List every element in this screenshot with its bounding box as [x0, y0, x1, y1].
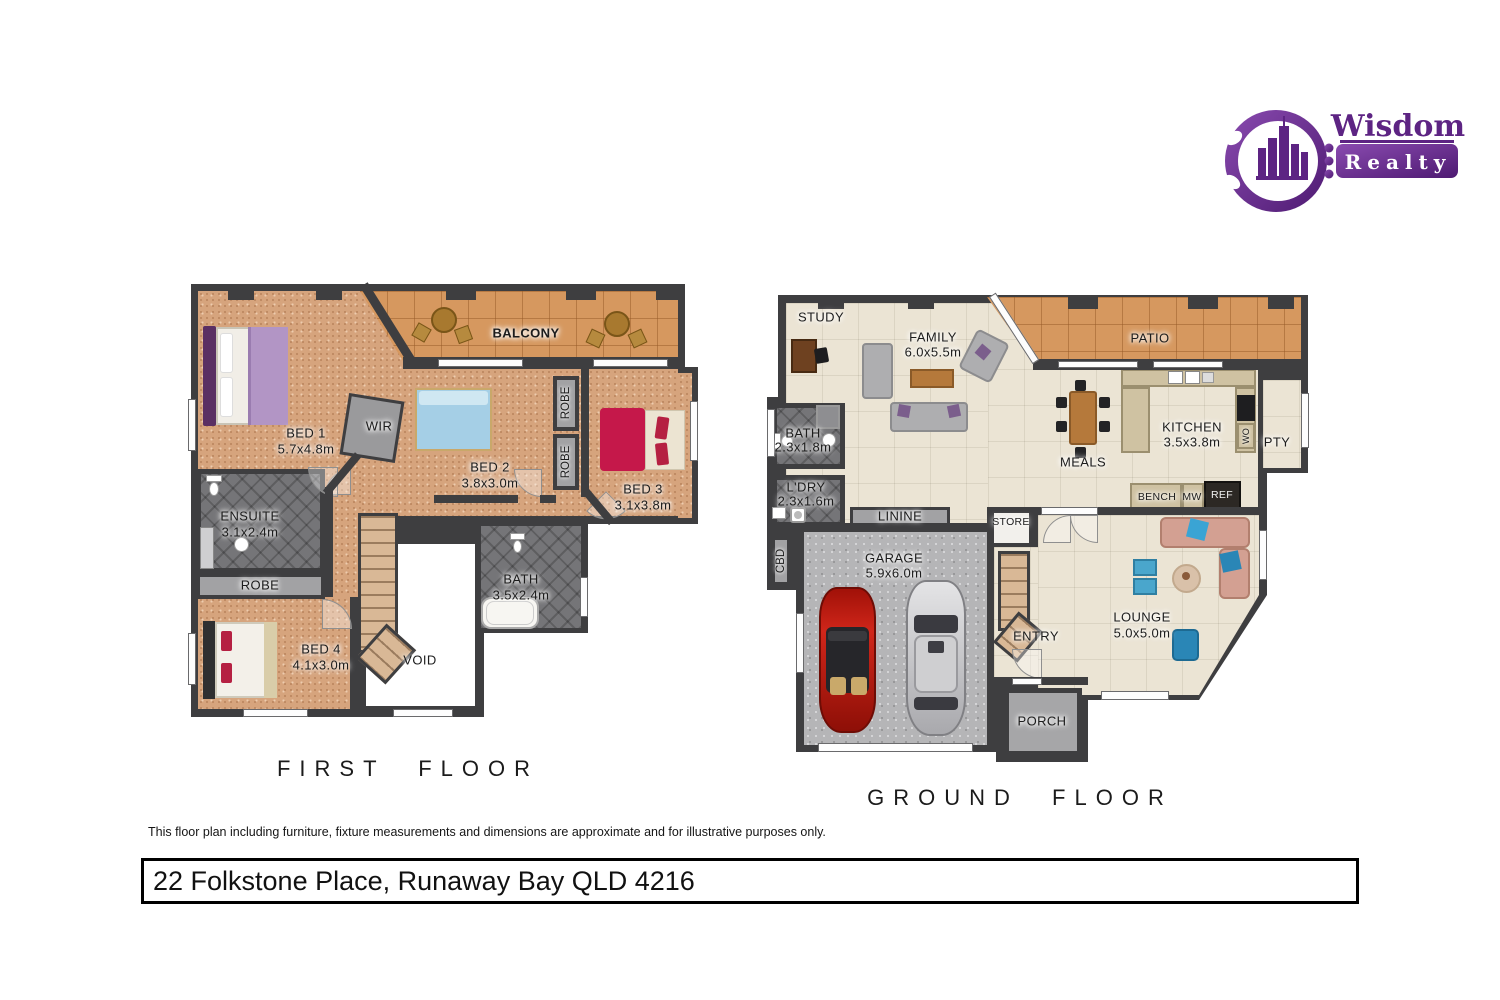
label-lounge-dims: 5.0x5.0m [1114, 626, 1171, 641]
wall-pier [1188, 295, 1218, 309]
cooktop-icon [1237, 395, 1255, 421]
label-garage-dims: 5.9x6.0m [866, 566, 923, 581]
window [438, 359, 523, 367]
label-bed2: BED 2 [470, 460, 510, 475]
silver-car-rear-window [914, 697, 958, 710]
toilet-icon [209, 482, 219, 496]
bathtub-inner [486, 601, 534, 625]
vanity [200, 527, 214, 569]
window [188, 399, 196, 451]
dining-chair [1099, 421, 1110, 432]
label-robe: ROBE [241, 578, 279, 593]
label-balcony: BALCONY [492, 326, 559, 341]
bed4-pillow [221, 663, 232, 683]
wall-pier [908, 295, 934, 309]
label-pantry: PTY [1264, 435, 1290, 450]
dining-chair [1075, 380, 1086, 391]
study-chair [814, 347, 829, 364]
wall-pier [566, 284, 596, 300]
wall-pier [316, 284, 342, 300]
label-bed1: BED 1 [286, 426, 326, 441]
address-text: 22 Folkstone Place, Runaway Bay QLD 4216 [144, 861, 1356, 901]
red-car-dash [828, 631, 867, 641]
label-cbd: CBD [775, 549, 787, 573]
label-entry: ENTRY [1013, 629, 1059, 644]
label-bed2-dims: 3.8x3.0m [462, 476, 519, 491]
ground-floor-title: GROUND FLOOR [800, 785, 1240, 811]
label-laundry-dims: 2.3x1.6m [778, 494, 835, 509]
disclaimer-text: This floor plan including furniture, fix… [148, 825, 826, 839]
wall-pier [656, 284, 682, 300]
label-ensuite-dims: 3.1x2.4m [222, 525, 279, 540]
balcony-table-icon [604, 311, 630, 337]
window [1058, 361, 1138, 368]
label-ensuite: ENSUITE [220, 509, 279, 524]
label-bench: BENCH [1138, 491, 1176, 503]
window [1041, 507, 1098, 515]
address-box: 22 Folkstone Place, Runaway Bay QLD 4216 [141, 858, 1359, 904]
armchair [1172, 629, 1199, 661]
silver-car-sunroof [928, 641, 944, 653]
label-void: VOID [403, 653, 436, 668]
bed4-headboard [203, 621, 215, 699]
toilet-icon [510, 533, 525, 540]
label-bed4-dims: 4.1x3.0m [293, 658, 350, 673]
first-floor-plan: BALCONY BED 1 5.7x4.8m WIR BED 2 3.8x3.0… [188, 281, 708, 751]
ground-floor-plan: STUDY FAMILY 6.0x5.5m PATIO BATH 2.3x1.8… [758, 285, 1313, 770]
sink-icon [1168, 371, 1183, 384]
drainer [1202, 372, 1214, 383]
store-floor [989, 509, 1033, 547]
label-linen: LININE [878, 509, 922, 524]
label-bed3-dims: 3.1x3.8m [615, 498, 672, 513]
coffee-table [910, 369, 954, 388]
first-floor-title: FIRST FLOOR [188, 756, 628, 782]
sofa-pillow [897, 404, 911, 418]
window [796, 613, 804, 673]
label-bed3: BED 3 [623, 482, 663, 497]
bed1-pillow [220, 333, 233, 373]
label-study: STUDY [798, 310, 844, 325]
label-family: FAMILY [909, 330, 957, 345]
dining-chair [1056, 397, 1067, 408]
laundry-tub [772, 507, 786, 519]
study-desk [791, 339, 817, 373]
silver-car-windshield [914, 615, 958, 633]
label-robe-lower: ROBE [560, 446, 572, 479]
label-garage: GARAGE [865, 551, 923, 566]
sofa [862, 343, 893, 399]
window [1153, 361, 1223, 368]
label-kitchen: KITCHEN [1162, 420, 1222, 435]
label-meals: MEALS [1060, 455, 1106, 470]
dining-table [1069, 391, 1097, 445]
bed3-blanket [600, 408, 645, 471]
label-fridge: REF [1211, 489, 1233, 501]
bed1-headboard [203, 326, 216, 426]
label-laundry: L'DRY [787, 480, 826, 495]
label-bed1-dims: 5.7x4.8m [278, 442, 335, 457]
wall-pier [1068, 295, 1098, 309]
wall-pier [228, 284, 254, 300]
wall [350, 631, 358, 709]
label-bath-dims: 2.3x1.8m [775, 440, 832, 455]
toilet-icon [513, 540, 522, 553]
dining-chair [1056, 421, 1067, 432]
window [690, 401, 698, 461]
label-bath-dims: 3.5x2.4m [493, 588, 550, 603]
wisdom-realty-logo: Wisdom Realty [1212, 98, 1467, 218]
wall [434, 495, 518, 503]
wall-pier [446, 284, 476, 300]
ottoman [1133, 578, 1157, 595]
window [593, 359, 668, 367]
bed4-blanket [264, 622, 277, 698]
wall-pier [818, 295, 844, 309]
logo-brand-line2: Realty [1345, 150, 1452, 174]
wall [540, 495, 556, 503]
ottoman [1133, 559, 1157, 576]
label-wir: WIR [366, 419, 392, 434]
label-bed4: BED 4 [301, 642, 341, 657]
wall [581, 369, 589, 497]
wall-pier [1268, 295, 1294, 309]
wall [1098, 507, 1267, 515]
toilet-icon [206, 475, 222, 482]
label-kitchen-dims: 3.5x3.8m [1164, 435, 1221, 450]
label-bath: BATH [785, 426, 820, 441]
sofa-pillow [1219, 550, 1242, 573]
label-patio: PATIO [1130, 331, 1169, 346]
car-seat [851, 677, 867, 695]
window [1301, 393, 1309, 448]
kitchen-bench [1121, 387, 1150, 453]
window [580, 577, 588, 617]
wall [987, 507, 994, 685]
room-pantry-floor [1263, 380, 1301, 468]
sink-icon [1185, 371, 1200, 384]
label-lounge: LOUNGE [1113, 610, 1170, 625]
rug-item [1182, 572, 1190, 580]
bed4-pillow [221, 631, 232, 651]
label-robe-upper: ROBE [560, 387, 572, 420]
label-family-dims: 6.0x5.5m [905, 345, 962, 360]
logo-brand-line1: Wisdom [1330, 109, 1465, 144]
window [393, 709, 453, 717]
window [1259, 530, 1267, 580]
bed3-pillow [655, 442, 669, 465]
window [1101, 691, 1169, 700]
label-bath: BATH [503, 572, 538, 587]
window [243, 709, 308, 717]
window [1012, 678, 1042, 685]
label-store: STORE [992, 516, 1029, 528]
floorplan-page: Wisdom Realty [0, 0, 1500, 1000]
bed2-pillow [419, 391, 488, 405]
dining-chair [1099, 397, 1110, 408]
label-microwave: MW [1182, 491, 1201, 503]
label-wall-oven: WO [1241, 428, 1251, 444]
bed1-blanket [248, 327, 288, 425]
bed1-pillow [220, 377, 233, 417]
wall [325, 487, 333, 573]
garage-door [818, 743, 973, 752]
washer-drum [794, 511, 802, 519]
window [188, 633, 196, 685]
label-porch: PORCH [1018, 714, 1067, 729]
car-seat [830, 677, 846, 695]
sofa-pillow [947, 404, 961, 418]
